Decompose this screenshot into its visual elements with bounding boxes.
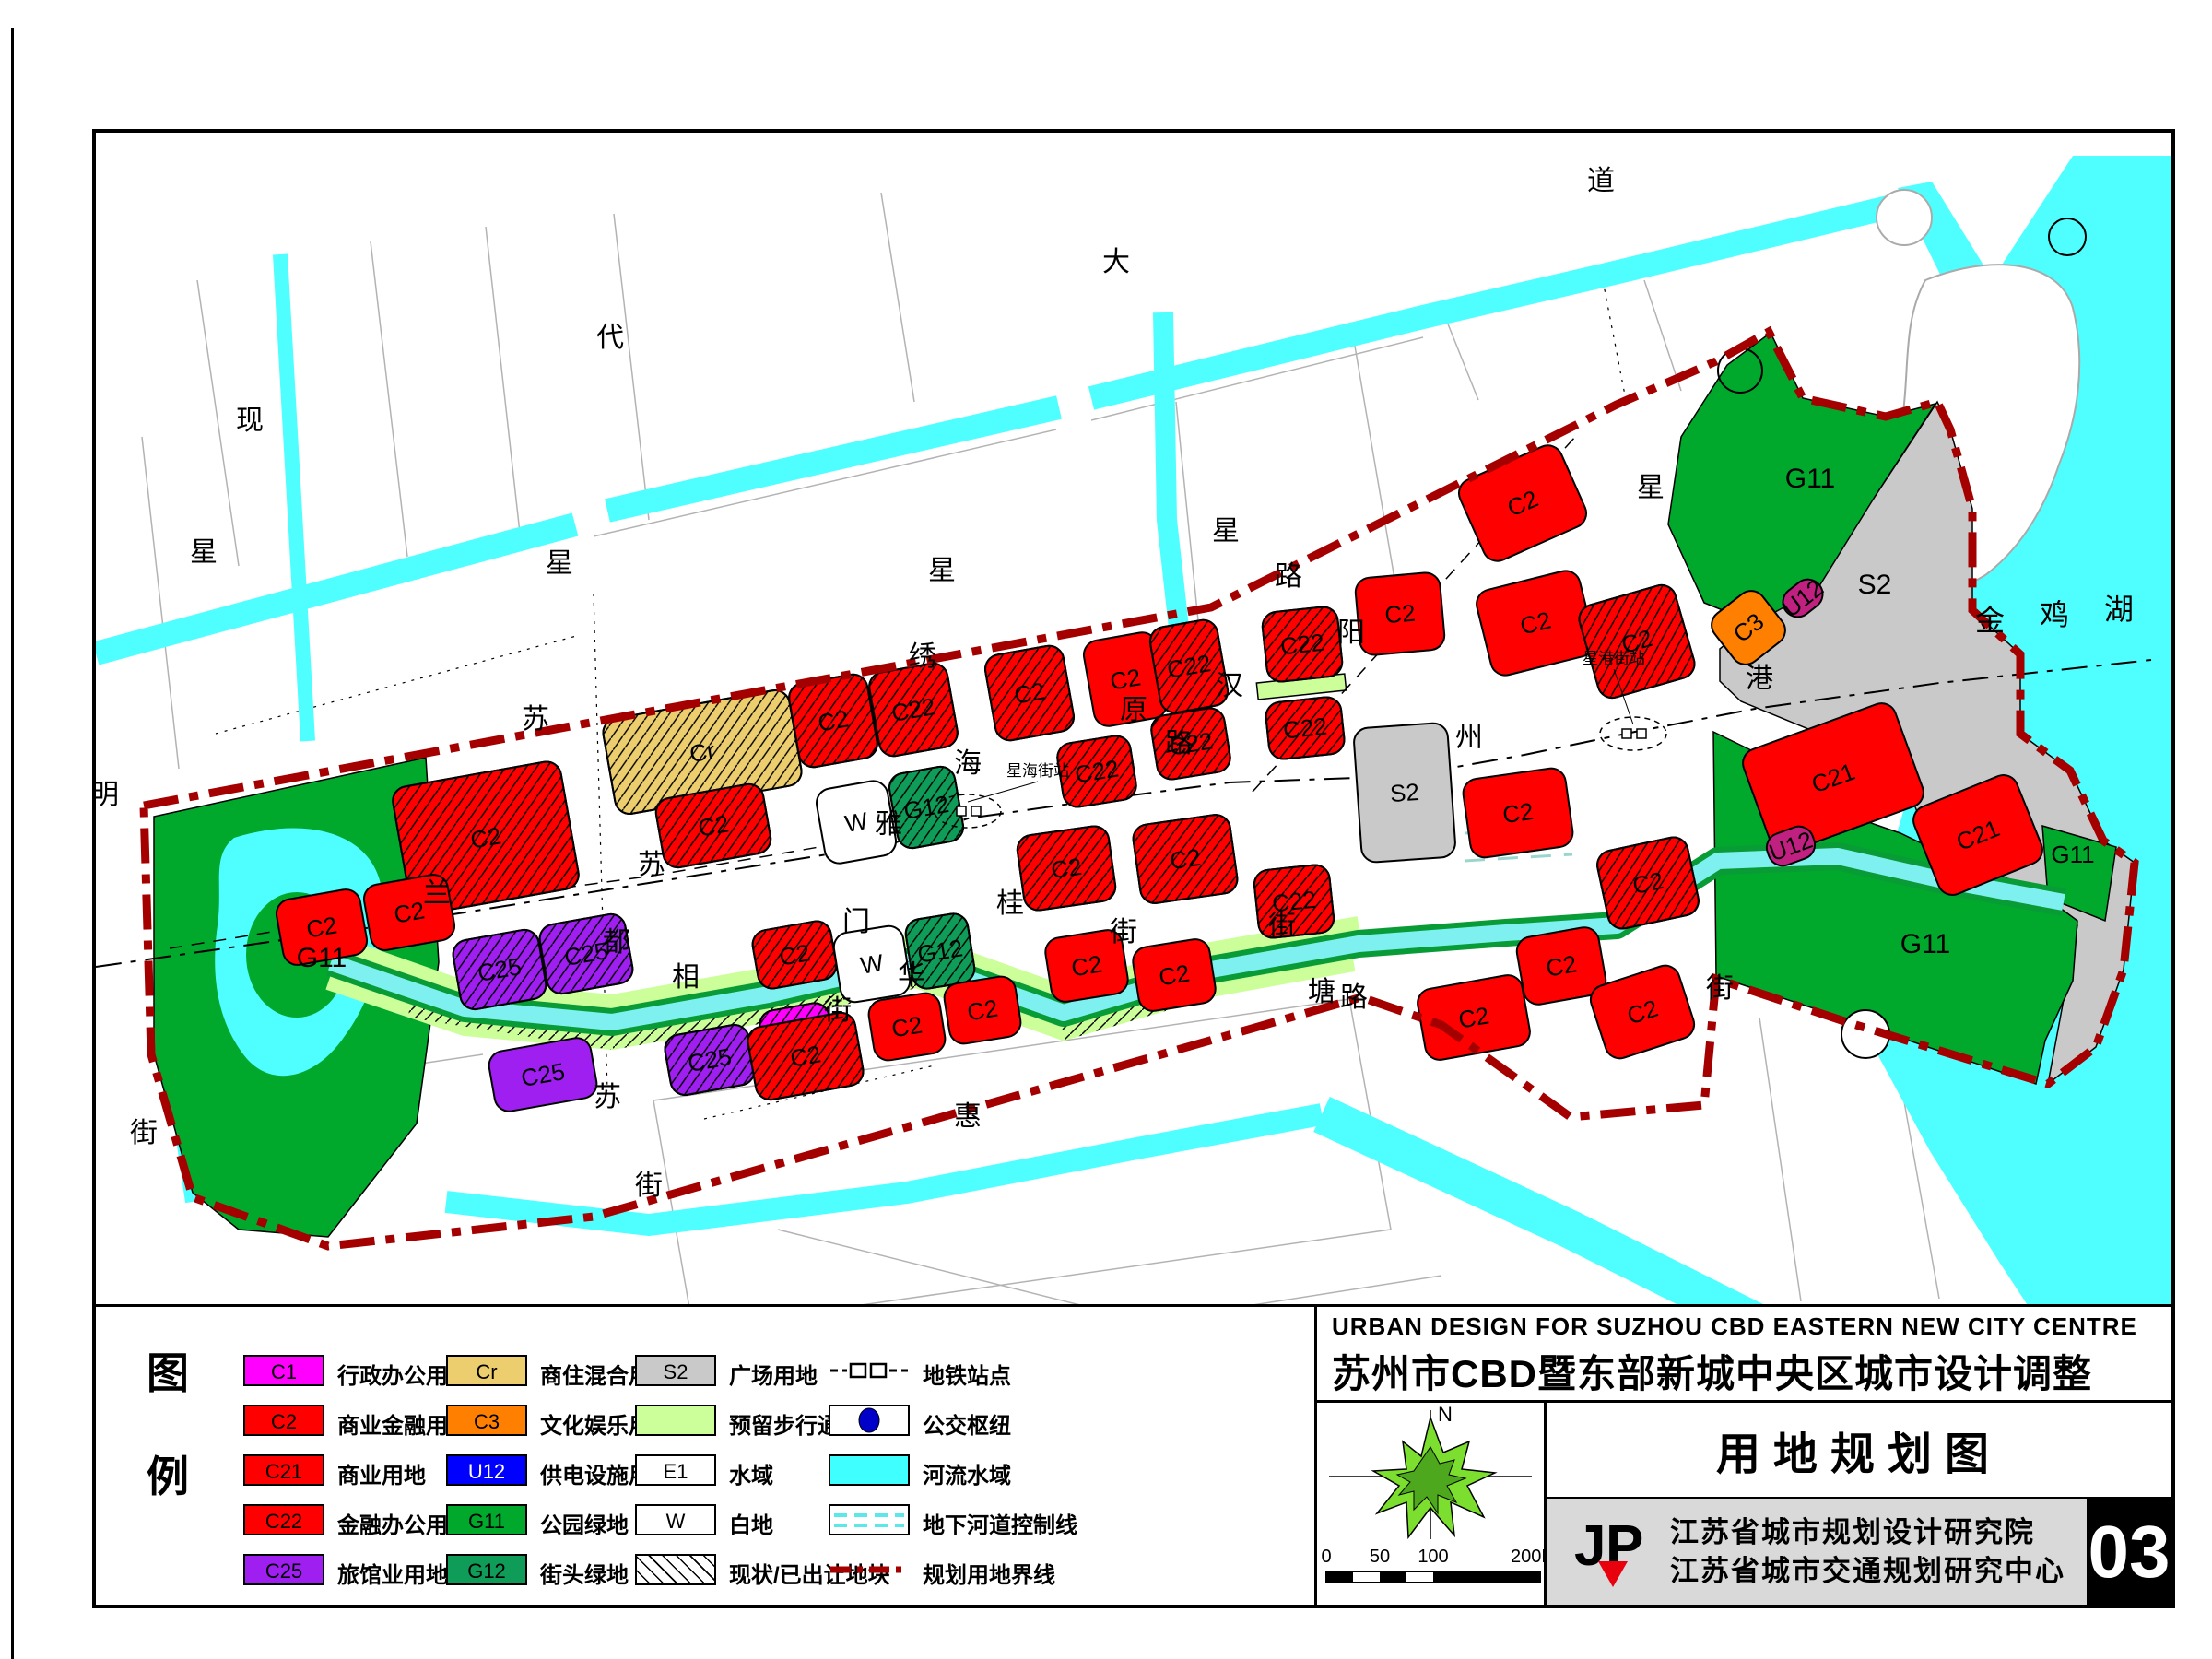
map-label: 路 <box>1275 561 1302 592</box>
map-label: 星 <box>1637 473 1665 503</box>
legend-swatch <box>635 1554 716 1585</box>
map-label: 绣 <box>909 641 936 672</box>
parcel-code: C2 <box>1157 959 1192 992</box>
project-title-en: URBAN DESIGN FOR SUZHOU CBD EASTERN NEW … <box>1332 1312 2171 1341</box>
map-label: 苏 <box>594 1082 621 1112</box>
institute-line2: 江苏省城市交通规划研究中心 <box>1670 1552 2065 1591</box>
legend-code: G12 <box>448 1559 525 1583</box>
legend-label: 白地 <box>729 1507 773 1539</box>
legend-code: C21 <box>245 1460 323 1484</box>
map-label: 街 <box>824 995 852 1026</box>
legend-swatch: U12 <box>446 1454 527 1486</box>
parcel-code: C2 <box>1049 853 1083 884</box>
legend-code: W <box>637 1510 714 1534</box>
legend-symbol-udash <box>829 1504 910 1535</box>
map-label: 街 <box>1706 973 1734 1004</box>
legend-swatch: S2 <box>635 1355 716 1386</box>
parcel-C2: C2 <box>1132 813 1240 905</box>
legend-swatch: C1 <box>243 1355 324 1386</box>
legend-label: 广场用地 <box>729 1358 818 1390</box>
map-label: 星 <box>1212 516 1240 547</box>
jp-logo: J P <box>1572 1513 1657 1591</box>
parcel-C2: C2 <box>1462 767 1575 860</box>
parcel-code: C2 <box>696 809 731 841</box>
map-label: 州 <box>1455 723 1483 753</box>
parcel-C2: C2 <box>942 974 1022 1045</box>
legend-label: 水域 <box>729 1457 773 1489</box>
parcel-C25: C25 <box>451 927 548 1011</box>
legend-swatch: G12 <box>446 1554 527 1585</box>
parcel-C22: C22 <box>1265 696 1346 760</box>
project-title-zh: 苏州市CBD暨东部新城中央区城市设计调整 <box>1332 1343 2171 1399</box>
map-label: 惠 <box>954 1101 982 1132</box>
legend-symbol-bus <box>829 1405 910 1436</box>
scale-tick: 200M <box>1511 1547 1544 1567</box>
parcel-code: C2 <box>788 1040 823 1072</box>
drawing-title-cell: 用地规划图 <box>1547 1403 2171 1499</box>
map-label: 街 <box>1110 917 1137 947</box>
institute-line1: 江苏省城市规划设计研究院 <box>1670 1513 2065 1552</box>
institute-bar: J P 江苏省城市规划设计研究院 江苏省城市交通规划研究中心 03 <box>1547 1499 2171 1605</box>
parcel-C2: C2 <box>866 991 947 1062</box>
parcel-code: C2 <box>1383 599 1417 629</box>
metro-station-name: 星港街站 <box>1583 650 1645 667</box>
map-label: 湖 <box>2104 593 2134 626</box>
legend-code: Cr <box>448 1360 525 1384</box>
map-label: 苏 <box>638 850 665 880</box>
parcel-code: C2 <box>1500 797 1535 829</box>
parcel-code: C2 <box>889 1011 924 1043</box>
parcel-C2: C2 <box>1131 937 1218 1013</box>
legend-title-char: 例 <box>147 1443 191 1504</box>
map-label: 星 <box>546 548 573 579</box>
parcel-code: C2 <box>468 821 503 853</box>
parcel-C2: C2 <box>750 919 839 991</box>
legend-code: E1 <box>637 1460 714 1484</box>
parcel-code: C22 <box>1282 712 1329 745</box>
legend-swatch: W <box>635 1504 716 1535</box>
project-title-row: URBAN DESIGN FOR SUZHOU CBD EASTERN NEW … <box>1317 1307 2171 1403</box>
legend-panel: 图 例 C1行政办公用地C2商业金融用地C21商业用地C22金融办公用地C25旅… <box>96 1307 1314 1605</box>
north-label: N <box>1438 1405 1453 1426</box>
legend-code: C3 <box>448 1410 525 1434</box>
map-label: 明 <box>96 780 119 810</box>
map-label: G11 <box>2051 841 2094 868</box>
map-label: S2 <box>1858 570 1892 600</box>
legend-label: 公交枢纽 <box>923 1407 1011 1440</box>
legend-code: C25 <box>245 1559 323 1583</box>
legend-label: 街头绿地 <box>540 1557 629 1589</box>
svg-text:J: J <box>1574 1514 1606 1578</box>
parcel-code: C2 <box>816 704 851 736</box>
parcel-code: W <box>859 948 886 980</box>
legend-code: S2 <box>637 1360 714 1384</box>
parcel-C2: C2 <box>982 643 1076 743</box>
parcel-code: S2 <box>1389 778 1420 807</box>
parcel-code: C2 <box>1069 950 1104 982</box>
map-label: 港 <box>1746 664 1773 694</box>
legend-swatch: E1 <box>635 1454 716 1486</box>
map-label: 雅 <box>875 809 902 840</box>
land-use-map: C2C2C2CrC2C22C2WG12C2C2C22C22C22C2C2C25C… <box>96 133 2171 1304</box>
legend-symbol-metro <box>829 1355 910 1386</box>
map-label: 星 <box>928 556 956 586</box>
map-label: 路 <box>1340 982 1368 1013</box>
legend-code: C22 <box>245 1510 323 1534</box>
legend-swatch: G11 <box>446 1504 527 1535</box>
legend-code: C1 <box>245 1360 323 1384</box>
map-label: 阳 <box>1337 618 1365 648</box>
legend-title-char: 图 <box>147 1340 191 1401</box>
legend-swatch: C22 <box>243 1504 324 1535</box>
map-label: 街 <box>1268 911 1296 941</box>
map-label: 街 <box>635 1171 663 1201</box>
drawing-title: 用地规划图 <box>1716 1418 2002 1482</box>
map-label: 桂 <box>996 888 1024 919</box>
map-label: 兰 <box>423 878 451 909</box>
map-label: 大 <box>1102 247 1130 277</box>
legend-label: 河流水域 <box>923 1457 1011 1489</box>
parcel-code: C2 <box>392 896 427 928</box>
map-label: 街 <box>130 1118 158 1148</box>
map-label: 汉 <box>1216 671 1243 701</box>
map-label: 道 <box>1587 166 1615 196</box>
parcel-code: C2 <box>777 938 812 971</box>
drawing-frame: C2C2C2CrC2C22C2WG12C2C2C22C22C22C2C2C25C… <box>92 129 2175 1608</box>
legend-code: G11 <box>448 1510 525 1534</box>
parcel-code: C2 <box>965 994 1000 1027</box>
parcel-code: Cr <box>688 736 718 768</box>
legend-label: 公园绿地 <box>540 1507 629 1539</box>
legend-swatch <box>829 1454 910 1486</box>
sheet-bottom-band: 图 例 C1行政办公用地C2商业金融用地C21商业用地C22金融办公用地C25旅… <box>96 1304 2171 1605</box>
legend-symbol-bound <box>829 1554 910 1585</box>
legend-swatch: Cr <box>446 1355 527 1386</box>
legend-label: 规划用地界线 <box>923 1557 1055 1589</box>
scale-tick: 0 <box>1321 1547 1331 1567</box>
page-edge-line <box>11 28 14 1659</box>
parcel-S2: S2 <box>1353 723 1456 864</box>
scale-tick: 100 <box>1418 1547 1448 1567</box>
lake-islet <box>1877 190 1932 245</box>
parcel-code: C22 <box>1279 629 1326 661</box>
legend-swatch <box>635 1405 716 1436</box>
parcel-code: C2 <box>1012 677 1047 709</box>
map-label: G11 <box>1785 464 1835 494</box>
plan-sheet: C2C2C2CrC2C22C2WG12C2C2C22C22C22C2C2C25C… <box>0 0 2212 1659</box>
parcel-code: C2 <box>1108 663 1143 695</box>
map-label: 相 <box>672 962 700 993</box>
map-label: 塘 <box>1308 977 1335 1007</box>
map-label: 鸡 <box>2040 598 2069 631</box>
map-label: G11 <box>297 943 347 973</box>
map-label: 苏 <box>522 704 549 735</box>
legend-swatch: C2 <box>243 1405 324 1436</box>
institute-names: 江苏省城市规划设计研究院 江苏省城市交通规划研究中心 <box>1670 1513 2065 1591</box>
map-label: 代 <box>596 323 624 353</box>
legend-swatch: C3 <box>446 1405 527 1436</box>
parcel-C2: C2 <box>1355 571 1446 656</box>
map-label: G11 <box>1900 929 1950 959</box>
map-label: 海 <box>954 748 982 779</box>
parcel-code: C2 <box>304 911 339 943</box>
sheet-number: 03 <box>2087 1499 2171 1605</box>
parcel-C2: C2 <box>1016 824 1117 912</box>
parcel-code: C2 <box>1168 843 1202 875</box>
legend-label: 地铁站点 <box>923 1358 1011 1390</box>
legend-code: U12 <box>448 1460 525 1484</box>
map-label: 星 <box>190 537 218 568</box>
parcel-code: C2 <box>1456 1001 1491 1033</box>
legend-label: 商业用地 <box>337 1457 426 1489</box>
title-block: URBAN DESIGN FOR SUZHOU CBD EASTERN NEW … <box>1314 1307 2171 1605</box>
map-label: 金 <box>1975 604 2005 637</box>
map-label: 原 <box>1120 695 1147 725</box>
map-label: 门 <box>842 907 870 937</box>
wind-rose: N <box>1320 1405 1541 1543</box>
map-label: 现 <box>236 406 264 436</box>
legend-swatch: C25 <box>243 1554 324 1585</box>
legend-label: 地下河道控制线 <box>923 1507 1077 1539</box>
parcel-C22: C22 <box>867 661 960 759</box>
legend-swatch: C21 <box>243 1454 324 1486</box>
map-label: 都 <box>603 927 630 958</box>
parcel-code: C2 <box>1544 949 1579 982</box>
metro-station-name: 星海街站 <box>1006 762 1069 780</box>
compass-cell: N 050100200M <box>1317 1403 1547 1605</box>
map-label: 华 <box>898 960 925 991</box>
legend-label: 旅馆业用地 <box>337 1557 448 1589</box>
legend-code: C2 <box>245 1410 323 1434</box>
scale-tick: 50 <box>1370 1547 1390 1567</box>
parcel-C22: C22 <box>1261 606 1343 683</box>
scale-bar: 050100200M <box>1317 1540 1544 1599</box>
map-label: 路 <box>1165 728 1193 759</box>
